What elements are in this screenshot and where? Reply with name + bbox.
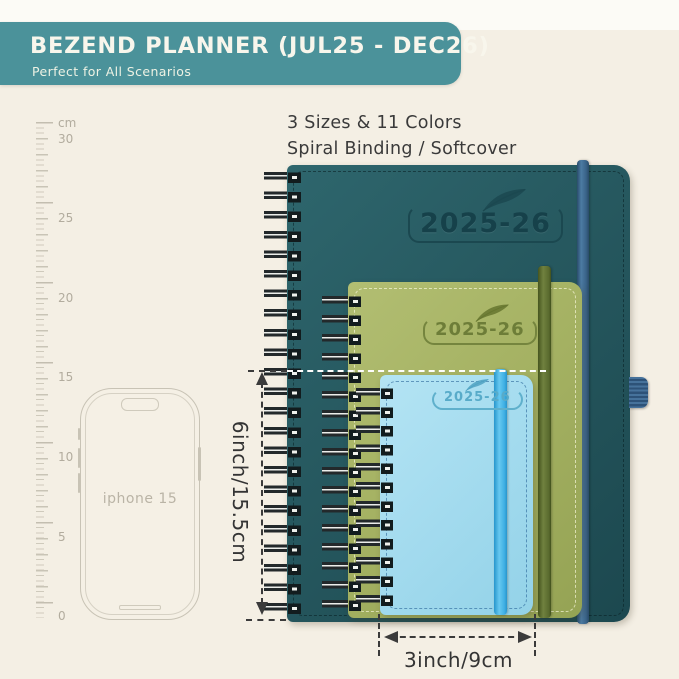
ruler-label-15: 15	[58, 370, 73, 384]
spiral-binding-medium	[322, 292, 348, 614]
phone-outline: iphone 15	[80, 388, 200, 620]
ruler-tick-marks	[36, 122, 53, 618]
feather-icon	[478, 187, 530, 213]
feather-icon	[473, 303, 511, 323]
info-line-sizes: 3 Sizes & 11 Colors	[287, 110, 517, 136]
home-indicator	[119, 605, 161, 610]
ruler-label-25: 25	[58, 211, 73, 225]
planner-medium-logo: 2025-26	[423, 318, 537, 345]
width-dimension-line	[390, 636, 524, 638]
phone-power-button	[198, 447, 201, 481]
planner-small-logo: 2025-26	[432, 389, 523, 410]
planner-year-small: 2025-26	[432, 389, 523, 410]
spiral-holes-large	[288, 170, 301, 618]
header-banner: BEZEND PLANNER (JUL25 - DEC26) Perfect f…	[0, 22, 461, 85]
product-info: 3 Sizes & 11 Colors Spiral Binding / Sof…	[287, 110, 517, 162]
page-title: BEZEND PLANNER (JUL25 - DEC26)	[30, 33, 490, 59]
page-subtitle: Perfect for All Scenarios	[32, 64, 191, 79]
ruler-label-10: 10	[58, 450, 73, 464]
arrow-down-icon	[256, 602, 268, 615]
arrow-right-icon	[518, 631, 532, 643]
ruler-label-30: 30	[58, 132, 73, 146]
phone-volume-down-button	[78, 473, 81, 493]
ruler-unit-label: cm	[58, 116, 76, 130]
phone-action-button	[78, 428, 81, 440]
width-dimension-cap-left	[378, 614, 380, 656]
ruler-label-0: 0	[58, 609, 66, 623]
height-dimension-guide-line	[287, 370, 546, 372]
spiral-binding-small	[356, 384, 380, 608]
height-dimension-line	[261, 382, 263, 604]
ruler-label-5: 5	[58, 530, 66, 544]
ruler-label-20: 20	[58, 291, 73, 305]
height-dimension-label: 6inch/15.5cm	[228, 412, 252, 572]
planner-small-cover	[380, 375, 533, 615]
dynamic-island	[121, 398, 159, 411]
height-dimension-cap-bottom	[246, 619, 286, 621]
elastic-band-medium	[538, 266, 551, 618]
info-line-binding: Spiral Binding / Softcover	[287, 136, 517, 162]
product-image: BEZEND PLANNER (JUL25 - DEC26) Perfect f…	[0, 0, 679, 679]
width-dimension-label: 3inch/9cm	[396, 648, 521, 672]
phone-label: iphone 15	[81, 491, 199, 507]
pen-loop	[629, 377, 648, 408]
spiral-holes-small	[381, 386, 393, 608]
arrow-left-icon	[384, 631, 398, 643]
phone-volume-up-button	[78, 448, 81, 468]
arrow-up-icon	[256, 372, 268, 385]
spiral-binding-large	[264, 168, 288, 620]
width-dimension-cap-right	[534, 614, 536, 656]
planner-large-logo: 2025-26	[408, 206, 563, 243]
feather-icon	[464, 378, 490, 392]
